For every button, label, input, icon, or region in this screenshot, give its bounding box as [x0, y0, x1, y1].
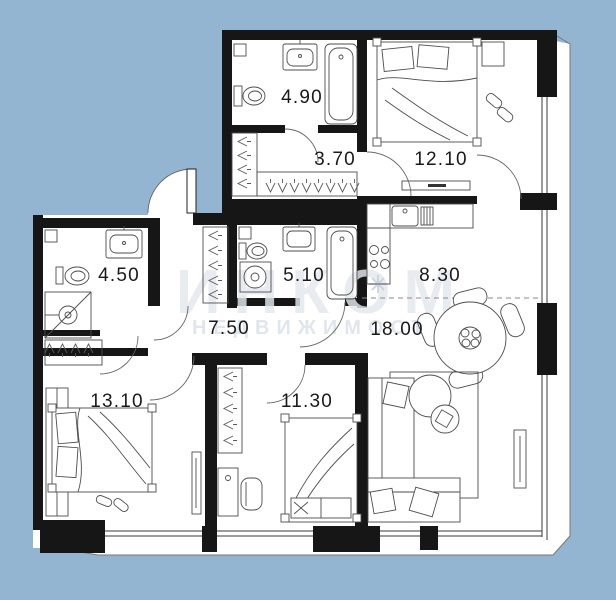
label-hallway: 7.50 [208, 318, 250, 339]
label-wardrobe-top: 3.70 [314, 149, 356, 170]
chair-icon [241, 478, 262, 510]
label-bathroom-top: 4.90 [281, 87, 323, 108]
label-kitchen: 8.30 [419, 265, 461, 286]
label-bedroom-top: 12.10 [414, 149, 468, 170]
bed-icon [281, 414, 361, 522]
bed-icon [373, 38, 481, 146]
floor-plan-canvas: ИНКОМ НЕДВИЖИМОСТЬ [0, 0, 616, 600]
entrance-door-leaf [187, 169, 196, 213]
label-bedroom-left: 13.10 [90, 391, 144, 412]
label-bedroom-middle: 11.30 [281, 391, 333, 412]
label-bathroom-middle: 5.10 [283, 265, 325, 286]
label-living: 18.00 [370, 319, 424, 340]
floor-plan-page: ИНКОМ НЕДВИЖИМОСТЬ [0, 0, 616, 600]
label-bathroom-left: 4.50 [98, 265, 140, 286]
bed-icon [48, 404, 156, 492]
